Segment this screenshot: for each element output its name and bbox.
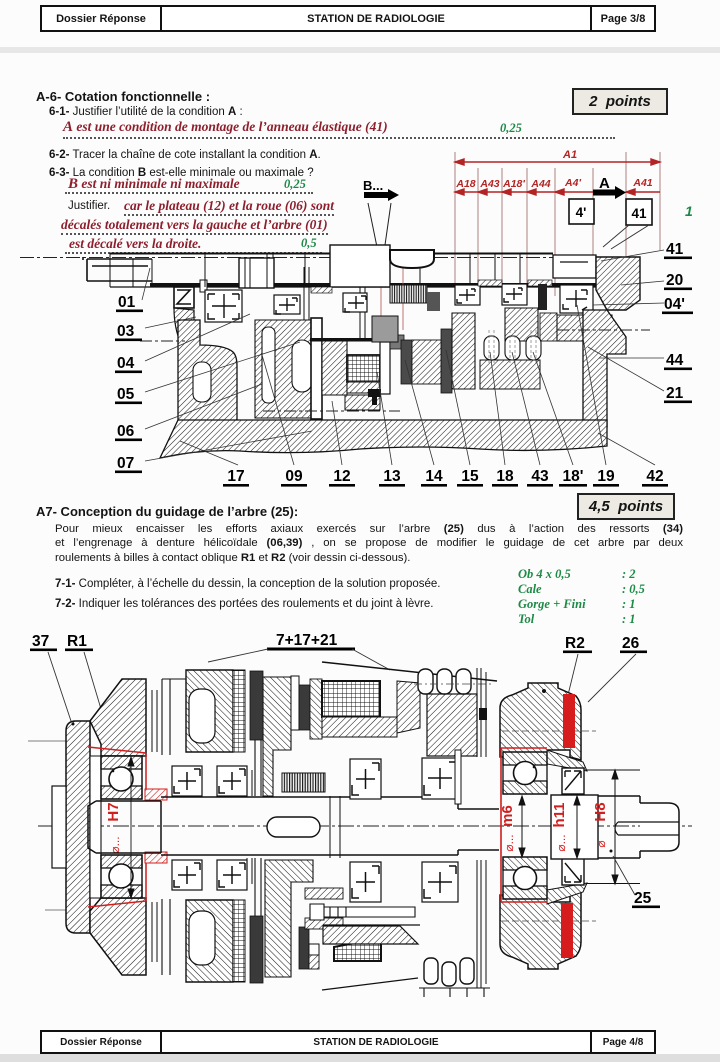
svg-text:1: 1 xyxy=(685,203,693,219)
svg-text:42: 42 xyxy=(646,468,663,485)
svg-text:03: 03 xyxy=(117,323,135,340)
svg-text:4': 4' xyxy=(576,205,587,220)
svg-text:R2: R2 xyxy=(565,635,585,652)
svg-text:A: A xyxy=(599,175,610,192)
svg-text:04': 04' xyxy=(664,296,685,313)
svg-text:09: 09 xyxy=(285,468,303,485)
svg-text:H8: H8 xyxy=(592,802,609,821)
svg-text:18': 18' xyxy=(563,468,584,485)
svg-text:7+17+21: 7+17+21 xyxy=(276,632,338,649)
svg-text:41: 41 xyxy=(631,206,647,221)
svg-text:26: 26 xyxy=(622,635,640,652)
svg-text:R1: R1 xyxy=(67,633,87,650)
svg-text:h11: h11 xyxy=(551,802,568,827)
svg-text:04: 04 xyxy=(117,355,135,372)
svg-text:B...: B... xyxy=(363,178,383,193)
svg-text:⌀...: ⌀... xyxy=(554,834,568,851)
svg-text:06: 06 xyxy=(117,423,135,440)
svg-text:41: 41 xyxy=(666,241,684,258)
svg-text:⌀...: ⌀... xyxy=(502,834,516,851)
svg-text:25: 25 xyxy=(634,890,652,907)
svg-text:15: 15 xyxy=(461,468,479,485)
svg-text:21: 21 xyxy=(666,385,684,402)
svg-text:A1: A1 xyxy=(562,149,577,161)
svg-text:A44: A44 xyxy=(530,178,550,190)
svg-text:19: 19 xyxy=(597,468,615,485)
svg-text:01: 01 xyxy=(118,294,136,311)
svg-text:A18: A18 xyxy=(455,178,475,190)
svg-text:⌀...: ⌀... xyxy=(108,836,122,853)
svg-text:A41: A41 xyxy=(632,177,652,189)
svg-text:43: 43 xyxy=(531,468,549,485)
svg-text:37: 37 xyxy=(32,633,49,650)
svg-text:12: 12 xyxy=(333,468,350,485)
svg-text:m6: m6 xyxy=(499,805,516,827)
svg-text:20: 20 xyxy=(666,272,683,289)
svg-text:07: 07 xyxy=(117,455,134,472)
svg-text:A4': A4' xyxy=(564,177,581,189)
svg-text:05: 05 xyxy=(117,386,135,403)
svg-text:44: 44 xyxy=(666,352,684,369)
svg-text:⌀: ⌀ xyxy=(594,840,608,847)
svg-text:14: 14 xyxy=(425,468,443,485)
svg-text:A43: A43 xyxy=(479,178,499,190)
svg-text:17: 17 xyxy=(227,468,244,485)
svg-text:18: 18 xyxy=(496,468,514,485)
svg-text:13: 13 xyxy=(383,468,401,485)
svg-text:A18': A18' xyxy=(502,178,525,190)
svg-text:H7: H7 xyxy=(105,802,122,821)
